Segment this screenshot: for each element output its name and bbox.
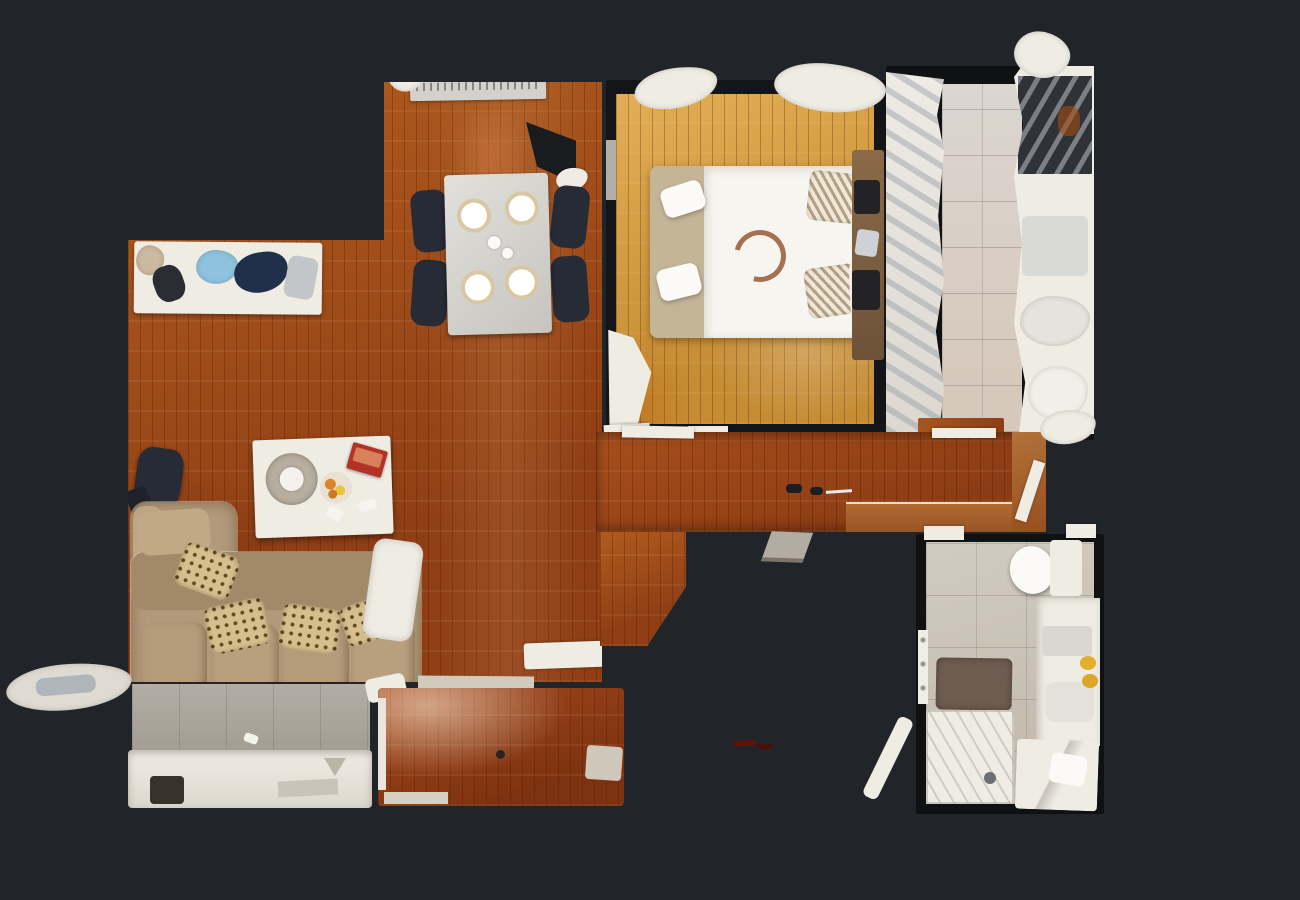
dining-chair <box>550 255 591 323</box>
wall-trim <box>606 140 616 200</box>
hallway <box>596 432 1046 532</box>
appliance-reflection <box>1058 106 1080 136</box>
small-white-object <box>358 498 378 513</box>
chrome-object <box>854 229 879 258</box>
vanity-grey-patch <box>1042 626 1092 656</box>
ledge-dark-nook <box>150 776 184 804</box>
counter-grey-patch <box>1022 216 1088 276</box>
second-room-floor <box>378 688 624 806</box>
vanity <box>1036 598 1100 746</box>
floor-knob <box>786 484 802 493</box>
small-white-object <box>325 505 345 523</box>
floor-scratch <box>826 489 852 494</box>
window-ledge <box>524 641 609 670</box>
sideboard-desk <box>134 241 323 315</box>
nightstand-dark <box>854 180 880 214</box>
yellow-towel <box>1080 656 1096 670</box>
fruit-plate <box>319 471 352 504</box>
ledge-grey-panel <box>278 778 339 797</box>
room-second <box>372 676 630 814</box>
room-living-dining <box>128 82 602 682</box>
cup <box>488 236 501 249</box>
bath-mat <box>936 657 1013 710</box>
dining-table <box>444 173 552 336</box>
towel-rail <box>918 630 928 704</box>
room-kitchen <box>886 66 1094 440</box>
place-setting-plate <box>504 265 539 300</box>
red-speck-artifact <box>757 744 773 750</box>
floor-beige-chip <box>384 792 448 804</box>
leopard-pillow <box>277 602 343 656</box>
dining-chair <box>410 259 451 327</box>
shower-door-artifact <box>862 715 915 801</box>
ledge-notch <box>324 758 346 776</box>
appliance-block <box>1018 76 1092 174</box>
place-setting-plate <box>504 191 539 226</box>
headboard-nightstands <box>852 150 884 360</box>
tub-pillow <box>1048 751 1089 787</box>
artifact-grey-core <box>35 674 96 697</box>
threshold-trim <box>932 428 996 438</box>
floor-patch <box>600 528 686 646</box>
cup <box>502 248 513 259</box>
exterior-scan-artifact <box>4 659 134 716</box>
balcony-railing-ledge <box>128 750 372 808</box>
yellow-towel <box>1082 674 1098 688</box>
silver-object <box>282 254 319 301</box>
floor-beige-chip <box>585 745 623 781</box>
radiator-fins <box>416 81 540 91</box>
kitchen-counter-right <box>1014 66 1094 434</box>
nightstand-dark <box>852 270 880 310</box>
toilet <box>1010 540 1082 600</box>
threshold-trim <box>924 526 964 540</box>
kitchen-counter-left <box>886 72 944 432</box>
door-leaf-artifact <box>761 531 813 562</box>
floor-knob <box>496 750 505 759</box>
shower <box>926 710 1014 804</box>
bathtub-fixture <box>1015 739 1099 812</box>
room-bathroom <box>916 534 1104 814</box>
red-book <box>346 442 388 478</box>
place-setting-plate <box>460 270 495 305</box>
kitchen-floor <box>942 84 1022 432</box>
dining-chair <box>549 184 591 249</box>
coffee-table <box>252 436 393 539</box>
counter-white-blob <box>1020 296 1090 346</box>
navy-object <box>232 249 291 296</box>
wall-trim <box>378 698 386 790</box>
red-book-cover-art <box>352 447 383 468</box>
red-speck-artifact <box>734 739 756 747</box>
threshold-trim <box>622 425 694 438</box>
dollhouse-floorplan-canvas[interactable] <box>0 0 1300 900</box>
sink-basin <box>1046 682 1094 722</box>
balcony <box>126 680 376 812</box>
radiator-vent <box>410 73 546 101</box>
toilet-tank <box>1050 540 1082 596</box>
room-bedroom <box>606 80 886 442</box>
double-bed <box>650 166 882 338</box>
orange-fruit <box>328 490 337 499</box>
floor-knob <box>810 487 823 495</box>
place-setting-plate <box>457 198 492 233</box>
blue-object <box>196 250 238 284</box>
threshold-trim <box>1066 524 1096 538</box>
shower-drain <box>984 772 996 784</box>
